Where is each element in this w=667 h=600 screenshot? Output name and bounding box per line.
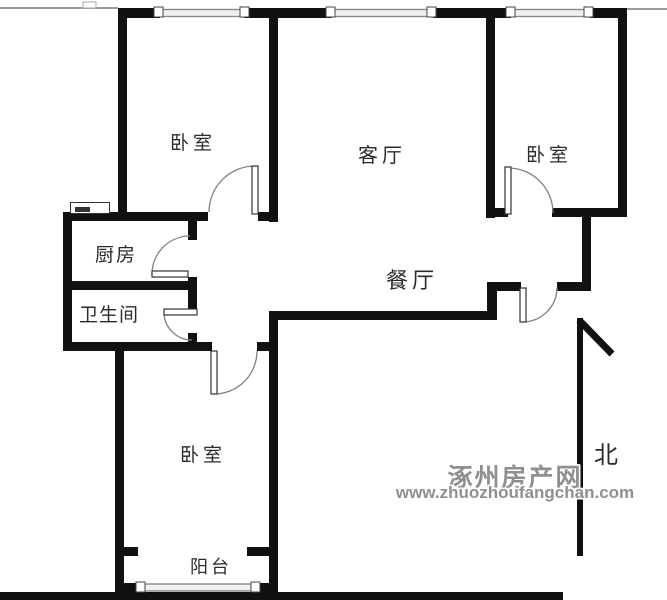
window	[511, 10, 590, 17]
watermark-site-url: www.zhuozhoufangchan.com	[354, 483, 667, 503]
room-label-bathroom: 卫生间	[79, 300, 139, 327]
window-post	[427, 7, 436, 17]
building-base-wall	[0, 592, 563, 600]
wall	[258, 212, 278, 221]
window-post	[240, 7, 249, 17]
door-leaf-bedroom-bottom	[211, 351, 217, 394]
window-post	[154, 7, 163, 17]
wall	[63, 342, 212, 351]
floorplan-image: 卧室 客厅 卧室 厨房 卫生间 餐厅 卧室 阳台 北 涿州房产网 www.zhu…	[0, 0, 667, 600]
room-label-bedroom-top-left: 卧室	[170, 128, 216, 155]
door-arc-kitchen	[152, 236, 190, 274]
wall	[487, 282, 521, 291]
boundary-tick	[83, 2, 96, 8]
wall	[115, 547, 138, 556]
wall	[433, 8, 511, 18]
north-arrow-shaft	[577, 318, 583, 556]
wall	[118, 8, 127, 221]
room-label-bedroom-top-right: 卧室	[526, 140, 572, 167]
wall	[244, 8, 332, 18]
room-label-kitchen: 厨房	[95, 240, 137, 267]
north-arrow-barb	[579, 320, 612, 354]
wall	[582, 208, 591, 291]
door-leaf-kitchen	[152, 271, 188, 277]
wall	[486, 8, 495, 218]
wall	[552, 208, 627, 217]
room-label-dining-room: 餐厅	[386, 263, 438, 295]
window-post	[136, 582, 145, 592]
wall	[618, 8, 627, 217]
window-post	[584, 7, 593, 17]
window-post	[506, 7, 515, 17]
door-arc-bedroom-top-right	[508, 168, 553, 213]
room-label-bedroom-bottom: 卧室	[180, 440, 226, 467]
door-leaf-entry	[520, 288, 526, 322]
window	[141, 584, 256, 591]
door-leaf-bathroom	[164, 309, 197, 315]
room-label-balcony: 阳台	[190, 553, 232, 579]
door-arc-bedroom-bottom	[214, 351, 257, 394]
window	[331, 10, 433, 17]
door-leaf-bedroom-top-left	[252, 166, 258, 214]
wall	[269, 311, 497, 320]
wall	[247, 547, 278, 556]
window-post	[326, 7, 335, 17]
door-arc-entry	[523, 288, 557, 323]
window-post	[251, 582, 260, 592]
room-label-living-room: 客厅	[358, 139, 406, 168]
window	[159, 10, 245, 17]
wall	[269, 8, 278, 222]
wall	[63, 281, 197, 290]
kitchen-window-sash	[75, 207, 90, 212]
door-leaf-bedroom-top-right	[505, 167, 511, 214]
door-arc-bathroom	[164, 312, 192, 340]
door-arc-bedroom-top-left	[209, 166, 255, 212]
